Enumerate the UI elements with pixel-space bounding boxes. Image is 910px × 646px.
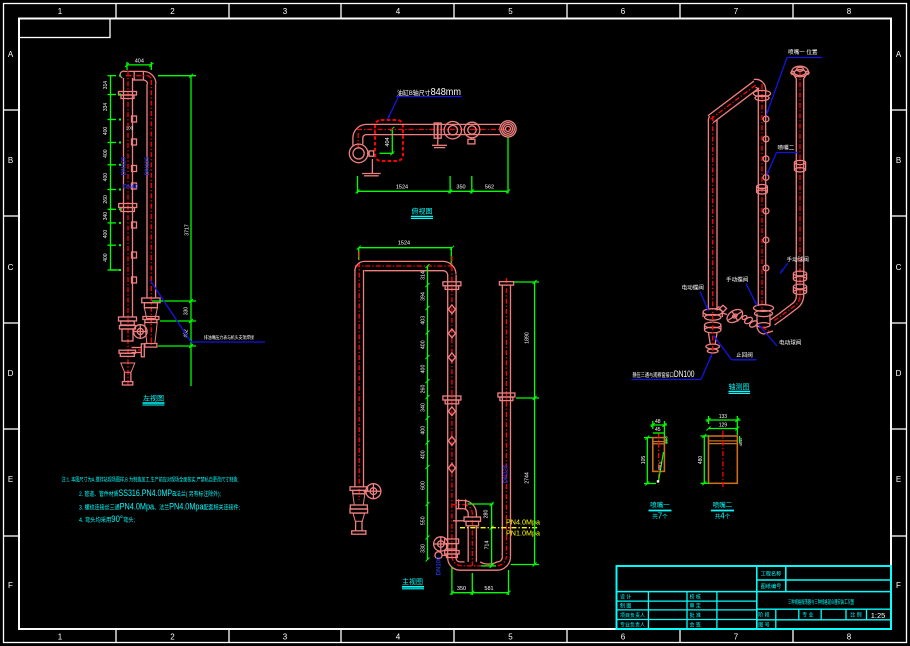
svg-text:129: 129 — [719, 422, 728, 428]
svg-text:A: A — [8, 50, 14, 59]
svg-text:2744: 2744 — [524, 472, 530, 484]
svg-text:图 号: 图 号 — [758, 623, 769, 629]
svg-text:E: E — [8, 475, 13, 484]
svg-text:260: 260 — [420, 385, 426, 394]
svg-text:D: D — [896, 369, 902, 378]
svg-text:103: 103 — [126, 126, 134, 131]
svg-text:5: 5 — [508, 7, 513, 16]
svg-text:45: 45 — [655, 427, 661, 433]
svg-text:4: 4 — [396, 633, 401, 642]
svg-text:402: 402 — [184, 329, 190, 338]
svg-text:3: 3 — [283, 7, 288, 16]
svg-text:403: 403 — [420, 316, 426, 325]
svg-text:比 例: 比 例 — [850, 612, 861, 619]
svg-text:2: 2 — [170, 7, 175, 16]
svg-text:562: 562 — [485, 184, 494, 190]
svg-text:133: 133 — [719, 414, 728, 420]
svg-text:334: 334 — [103, 103, 109, 112]
svg-text:喷嘴二: 喷嘴二 — [778, 144, 795, 152]
svg-text:F: F — [896, 581, 901, 590]
svg-text:手动球阀: 手动球阀 — [787, 256, 810, 264]
svg-text:C: C — [8, 263, 14, 272]
svg-text:排油嘴压力表与机头支架焊接: 排油嘴压力表与机头支架焊接 — [204, 334, 255, 341]
svg-text:会 签: 会 签 — [690, 621, 701, 628]
svg-text:550: 550 — [420, 516, 426, 525]
svg-text:图纸编号: 图纸编号 — [761, 582, 782, 590]
svg-text:480: 480 — [698, 456, 704, 465]
svg-text:1:25: 1:25 — [871, 611, 886, 620]
svg-text:48: 48 — [655, 419, 661, 425]
svg-text:280: 280 — [483, 510, 489, 519]
svg-text:专业负责人: 专业负责人 — [620, 621, 645, 628]
svg-text:1524: 1524 — [398, 241, 410, 247]
svg-text:2: 2 — [170, 633, 175, 642]
svg-text:电动蝶阀: 电动蝶阀 — [682, 284, 705, 292]
svg-text:主视图: 主视图 — [402, 577, 423, 586]
svg-text:400: 400 — [103, 173, 109, 182]
svg-text:DN125: DN125 — [145, 156, 151, 175]
svg-text:D: D — [8, 369, 14, 378]
svg-text:8: 8 — [847, 633, 852, 642]
svg-text:注:1. 本图尺寸为A.搅拌站现场图样,B 为制造加工,生产: 注:1. 本图尺寸为A.搅拌站现场图样,B 为制造加工,生产前应对现场全面核实,… — [62, 476, 239, 484]
svg-text:喷嘴一: 喷嘴一 — [650, 500, 670, 509]
svg-text:轴测图: 轴测图 — [729, 382, 750, 391]
svg-text:4x45: 4x45 — [738, 437, 743, 446]
svg-text:7: 7 — [734, 633, 739, 642]
svg-text:1: 1 — [58, 7, 63, 16]
svg-text:专 业: 专 业 — [802, 612, 813, 619]
svg-text:批 准: 批 准 — [690, 612, 701, 619]
svg-text:俯视图: 俯视图 — [412, 207, 433, 216]
svg-text:8: 8 — [847, 7, 852, 16]
svg-text:1: 1 — [58, 633, 63, 642]
svg-text:400: 400 — [103, 230, 109, 239]
svg-text:A: A — [896, 50, 902, 59]
svg-text:B: B — [896, 156, 901, 165]
svg-text:校 核: 校 核 — [690, 594, 701, 601]
svg-text:314: 314 — [420, 271, 426, 280]
svg-text:6: 6 — [621, 633, 626, 642]
svg-text:阶 段: 阶 段 — [758, 612, 769, 619]
svg-text:340: 340 — [103, 212, 109, 221]
svg-text:404: 404 — [385, 137, 391, 146]
svg-text:工程名称: 工程名称 — [761, 570, 782, 578]
svg-text:400: 400 — [103, 149, 109, 158]
svg-text:DN40: DN40 — [123, 185, 139, 191]
svg-text:394: 394 — [420, 292, 426, 301]
svg-text:314: 314 — [103, 81, 109, 90]
svg-text:7: 7 — [734, 7, 739, 16]
svg-text:左视图: 左视图 — [143, 394, 164, 403]
svg-text:105: 105 — [641, 456, 647, 465]
svg-text:DN125: DN125 — [503, 464, 509, 483]
svg-text:714: 714 — [484, 541, 490, 550]
svg-text:C: C — [896, 263, 902, 272]
svg-text:4: 4 — [396, 7, 401, 16]
svg-text:1524: 1524 — [396, 184, 408, 190]
svg-text:260: 260 — [103, 195, 109, 204]
svg-text:340: 340 — [420, 403, 426, 412]
svg-text:三种规格振荡器与三种规格混合器安装工况图: 三种规格振荡器与三种规格混合器安装工况图 — [788, 598, 854, 606]
svg-text:审 定: 审 定 — [690, 602, 701, 609]
svg-text:3: 3 — [283, 633, 288, 642]
svg-text:手动蝶阀: 手动蝶阀 — [726, 276, 749, 284]
svg-text:3717: 3717 — [184, 224, 190, 236]
svg-text:6: 6 — [621, 7, 626, 16]
svg-text:B: B — [8, 156, 13, 165]
svg-text:设 计: 设 计 — [620, 594, 631, 601]
svg-text:止回阀: 止回阀 — [736, 351, 753, 359]
svg-text:400: 400 — [103, 127, 109, 136]
svg-text:电动球阀: 电动球阀 — [779, 339, 802, 347]
svg-text:581: 581 — [484, 586, 493, 592]
svg-text:350: 350 — [456, 184, 465, 190]
svg-text:400: 400 — [420, 340, 426, 349]
svg-text:5: 5 — [508, 633, 513, 642]
svg-text:400: 400 — [420, 426, 426, 435]
svg-text:E: E — [896, 475, 901, 484]
svg-text:项目负责人: 项目负责人 — [620, 612, 645, 619]
svg-text:DN125: DN125 — [121, 156, 127, 175]
svg-text:350: 350 — [457, 586, 466, 592]
svg-text:DN100: DN100 — [436, 556, 442, 575]
svg-text:制 图: 制 图 — [620, 602, 631, 609]
svg-text:1890: 1890 — [524, 332, 530, 344]
svg-text:400: 400 — [103, 253, 109, 262]
svg-text:400: 400 — [420, 450, 426, 459]
svg-text:400: 400 — [420, 365, 426, 374]
svg-text:喷嘴二: 喷嘴二 — [713, 500, 733, 509]
svg-text:喷嘴一 位置: 喷嘴一 位置 — [788, 48, 818, 56]
svg-text:330: 330 — [184, 307, 190, 316]
svg-text:404: 404 — [135, 58, 144, 64]
svg-text:330: 330 — [420, 544, 426, 553]
svg-text:600: 600 — [420, 481, 426, 490]
svg-text:F: F — [8, 581, 13, 590]
